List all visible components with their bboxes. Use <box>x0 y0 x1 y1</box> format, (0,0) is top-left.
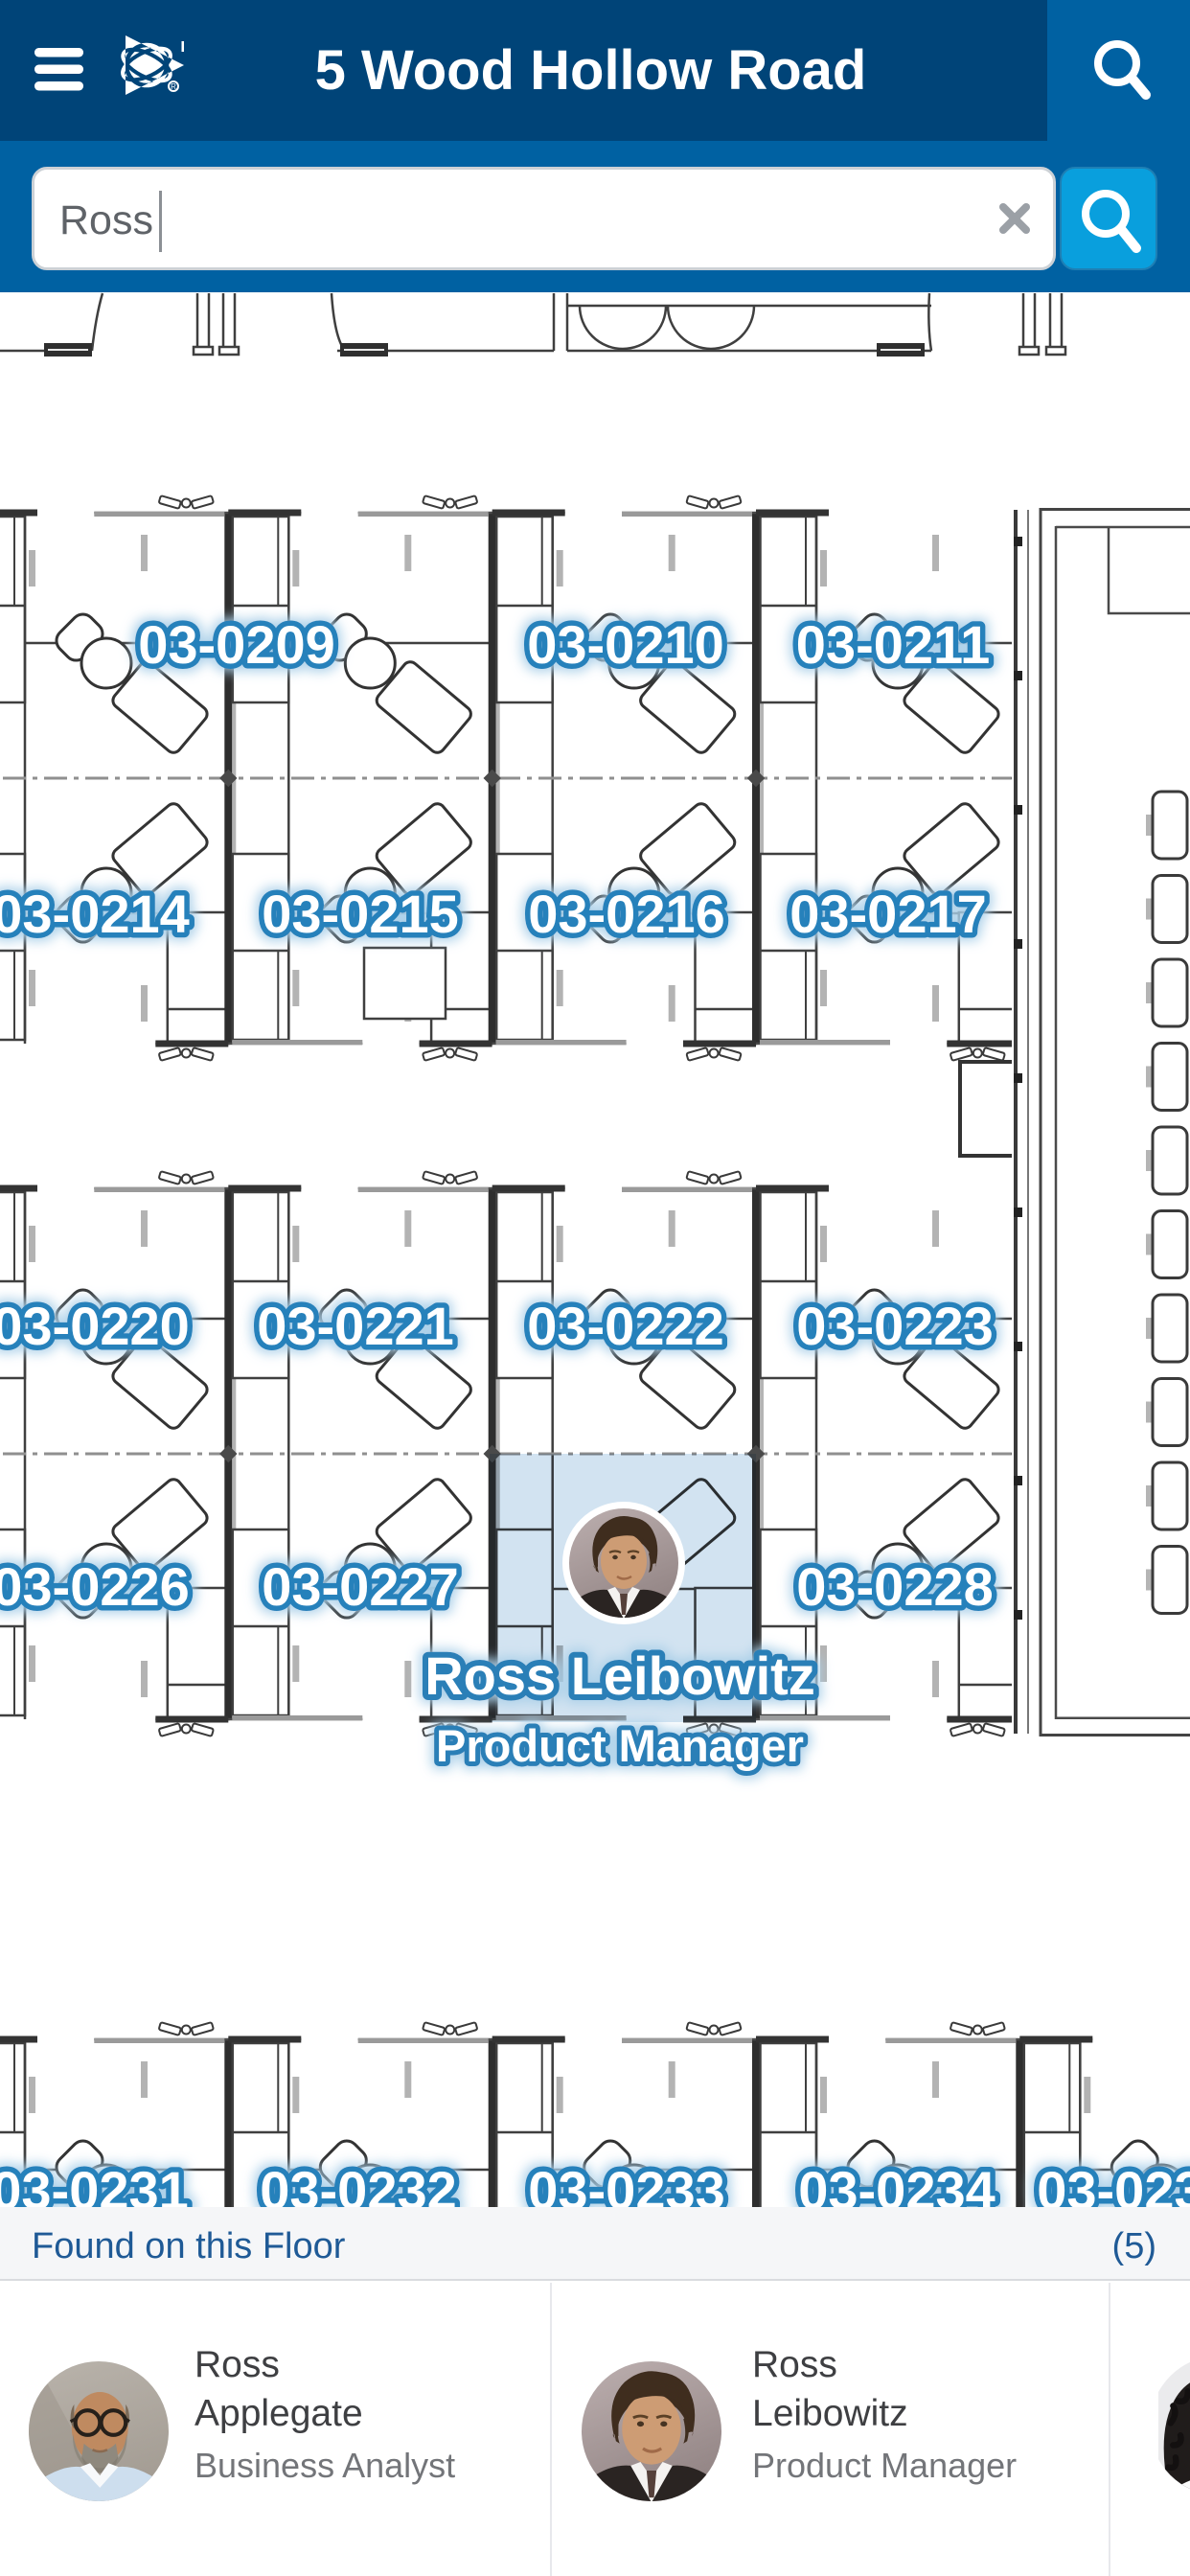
svg-text:03-0215: 03-0215 <box>262 884 459 944</box>
svg-text:03-0210: 03-0210 <box>527 614 724 675</box>
svg-text:03-0216: 03-0216 <box>528 884 725 944</box>
svg-text:03-0227: 03-0227 <box>262 1556 459 1617</box>
svg-text:03-0222: 03-0222 <box>527 1296 724 1356</box>
svg-text:03-0221: 03-0221 <box>257 1296 454 1356</box>
svg-text:Ross Leibowitz: Ross Leibowitz <box>424 1645 815 1706</box>
svg-text:03-0217: 03-0217 <box>790 884 987 944</box>
svg-text:03-0228: 03-0228 <box>796 1556 994 1617</box>
svg-text:03-0209: 03-0209 <box>138 614 335 675</box>
svg-text:03-0211: 03-0211 <box>796 614 990 675</box>
svg-text:03-0226: 03-0226 <box>0 1556 190 1617</box>
svg-text:03-0220: 03-0220 <box>0 1296 190 1356</box>
svg-text:Product Manager: Product Manager <box>436 1720 804 1771</box>
svg-text:03-0223: 03-0223 <box>796 1296 994 1356</box>
svg-text:03-0214: 03-0214 <box>0 884 190 944</box>
